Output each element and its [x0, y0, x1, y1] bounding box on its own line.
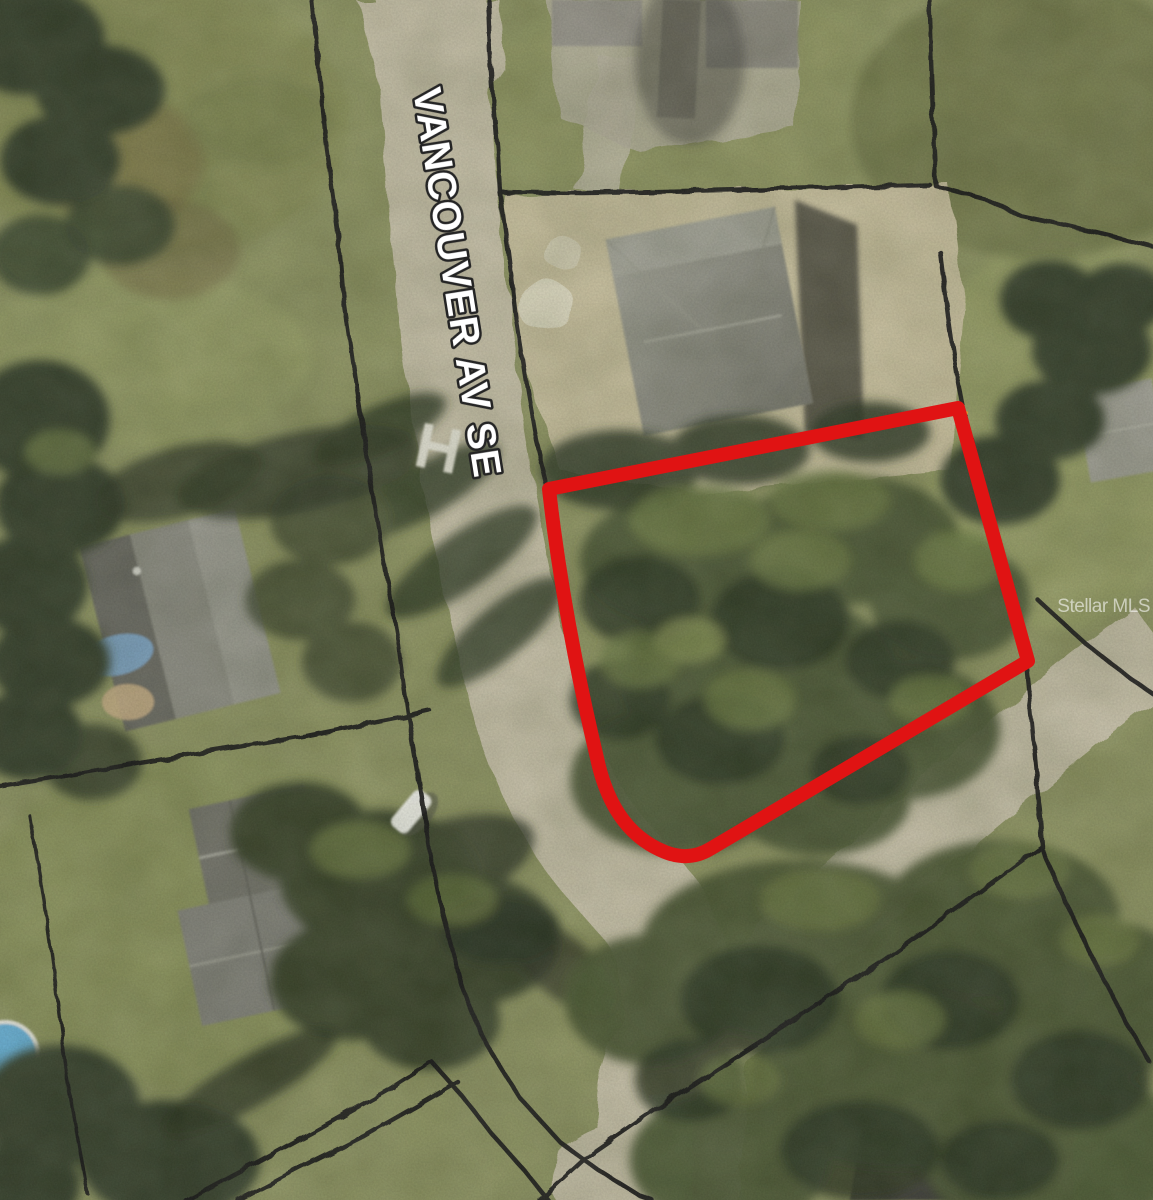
aerial-photo: VANCOUVER AV SE Stellar MLS [0, 0, 1153, 1200]
aerial-parcel-map: VANCOUVER AV SE Stellar MLS [0, 0, 1153, 1200]
watermark: Stellar MLS [1057, 596, 1150, 617]
texture-grain-light [0, 0, 1153, 1200]
